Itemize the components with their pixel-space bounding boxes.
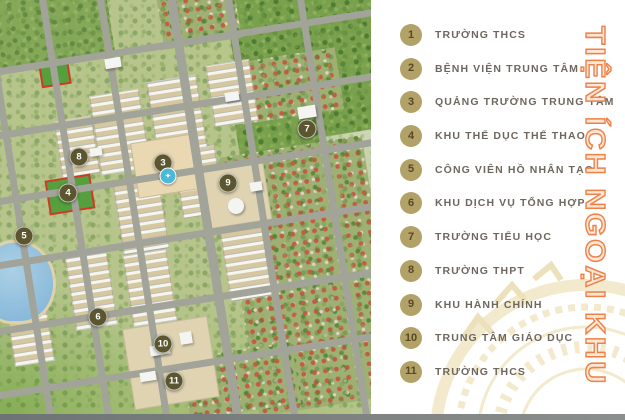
legend-item: 10 TRUNG TÂM GIÁO DỤC <box>400 327 567 349</box>
legend-item-number: 9 <box>400 294 422 316</box>
legend-item-label: TRƯỜNG THCS <box>435 29 526 41</box>
map-marker: 7 <box>298 120 317 139</box>
map-marker: 4 <box>59 184 78 203</box>
legend-item: 11 TRƯỜNG THCS <box>400 361 567 383</box>
marker-layer: 3 4 5 6 7 8 9 10 11 ✦ <box>0 0 371 414</box>
legend-item-number: 1 <box>400 24 422 46</box>
legend-item: 6 KHU DỊCH VỤ TỔNG HỢP <box>400 192 567 214</box>
map-marker: 5 <box>15 227 34 246</box>
legend-item-label: TRƯỜNG THPT <box>435 265 525 277</box>
masterplan-map: 3 4 5 6 7 8 9 10 11 ✦ <box>0 0 371 414</box>
legend-item-label: TRUNG TÂM GIÁO DỤC <box>435 332 573 344</box>
legend-item-number: 2 <box>400 58 422 80</box>
legend-item-label: TRƯỜNG THCS <box>435 366 526 378</box>
legend-item-label: CÔNG VIÊN HỒ NHÂN TẠO <box>435 164 594 176</box>
legend-item-number: 7 <box>400 226 422 248</box>
legend-item: 3 QUẢNG TRƯỜNG TRUNG TÂM <box>400 91 567 113</box>
legend-item: 4 KHU THỂ DỤC THỂ THAO <box>400 125 567 147</box>
legend-item-number: 6 <box>400 192 422 214</box>
map-marker: 6 <box>89 308 108 327</box>
legend-item: 1 TRƯỜNG THCS <box>400 24 567 46</box>
bottom-border-bar <box>0 414 625 420</box>
map-marker: 8 <box>70 148 89 167</box>
legend-item-number: 4 <box>400 125 422 147</box>
legend-item: 2 BỆNH VIỆN TRUNG TÂM <box>400 58 567 80</box>
legend-item: 9 KHU HÀNH CHÍNH <box>400 294 567 316</box>
map-marker: 11 <box>165 372 184 391</box>
legend-item-label: TRƯỜNG TIỂU HỌC <box>435 231 552 243</box>
legend-item-label: KHU DỊCH VỤ TỔNG HỢP <box>435 197 586 209</box>
legend-list: 1 TRƯỜNG THCS 2 BỆNH VIỆN TRUNG TÂM 3 QU… <box>400 24 567 383</box>
legend-item: 8 TRƯỜNG THPT <box>400 260 567 282</box>
legend-item-number: 5 <box>400 159 422 181</box>
legend-item: 7 TRƯỜNG TIỂU HỌC <box>400 226 567 248</box>
section-title-text: TIỆN ÍCH NGOẠI KHU <box>580 26 611 386</box>
section-title: TIỆN ÍCH NGOẠI KHU <box>576 0 622 414</box>
location-pin-icon: ✦ <box>160 168 177 185</box>
legend-item-number: 11 <box>400 361 422 383</box>
legend-item: 5 CÔNG VIÊN HỒ NHÂN TẠO <box>400 159 567 181</box>
legend-item-number: 10 <box>400 327 422 349</box>
legend-panel: 1 TRƯỜNG THCS 2 BỆNH VIỆN TRUNG TÂM 3 QU… <box>371 0 625 414</box>
legend-item-number: 3 <box>400 91 422 113</box>
legend-item-label: KHU HÀNH CHÍNH <box>435 299 543 311</box>
map-marker: 9 <box>219 174 238 193</box>
legend-item-label: BỆNH VIỆN TRUNG TÂM <box>435 63 579 75</box>
legend-item-number: 8 <box>400 260 422 282</box>
legend-item-label: KHU THỂ DỤC THỂ THAO <box>435 130 586 142</box>
map-marker: 10 <box>154 335 173 354</box>
